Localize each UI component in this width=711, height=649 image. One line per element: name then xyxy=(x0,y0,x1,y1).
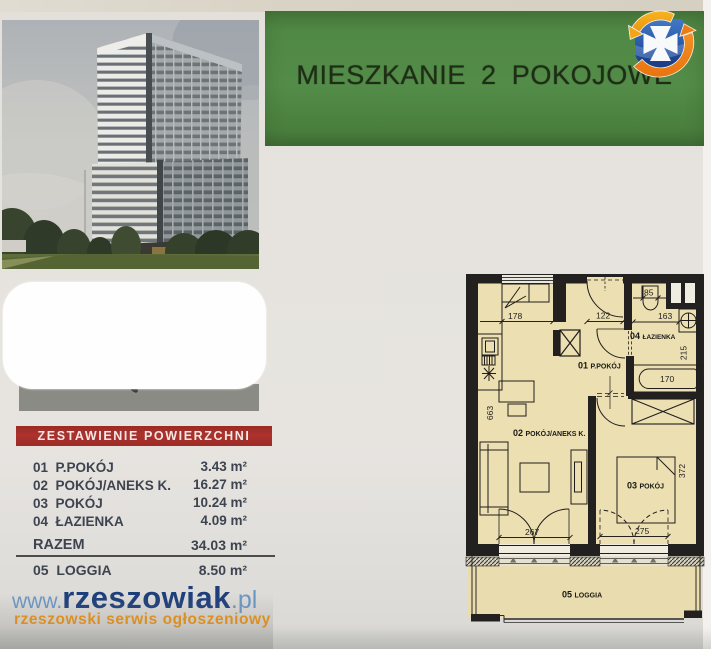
svg-text:663: 663 xyxy=(485,406,495,420)
svg-text:122: 122 xyxy=(596,311,610,321)
svg-text:163: 163 xyxy=(658,311,672,321)
svg-text:275: 275 xyxy=(635,526,649,536)
svg-text:85: 85 xyxy=(644,288,654,298)
svg-text:267: 267 xyxy=(525,527,539,537)
svg-text:178: 178 xyxy=(508,311,522,321)
svg-text:215: 215 xyxy=(678,346,688,360)
svg-text:372: 372 xyxy=(677,464,687,478)
svg-text:170: 170 xyxy=(660,374,674,384)
